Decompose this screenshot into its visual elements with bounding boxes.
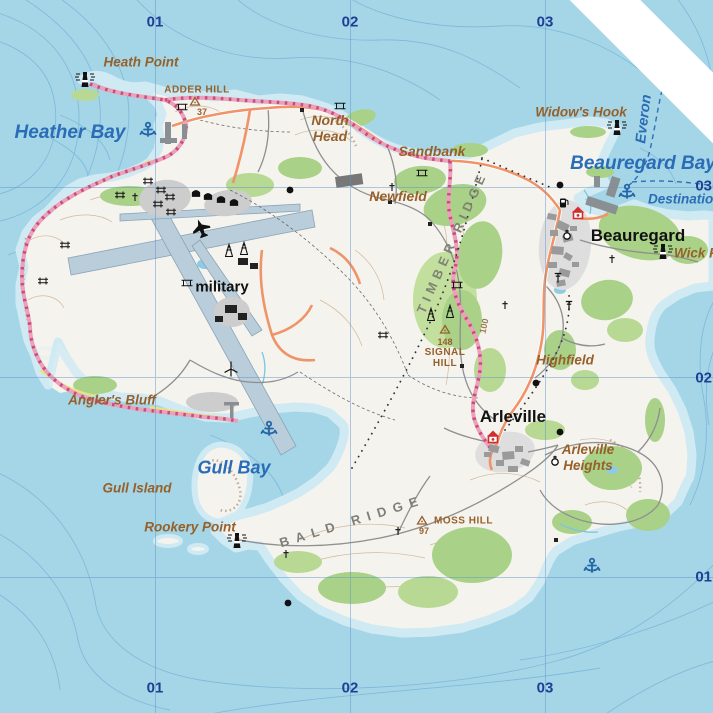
map-viewport[interactable]: Heather Bay Beauregard Bay Gull Bay Ever… bbox=[0, 0, 713, 713]
settlement-dot-icon bbox=[285, 600, 292, 607]
settlement-dot-icon bbox=[557, 182, 564, 189]
gull-island bbox=[194, 445, 250, 522]
settlement-dot-icon bbox=[533, 380, 540, 387]
settlement-dot-icon bbox=[557, 429, 564, 436]
map-canvas[interactable] bbox=[0, 0, 713, 713]
settlement-dot-icon bbox=[287, 187, 294, 194]
